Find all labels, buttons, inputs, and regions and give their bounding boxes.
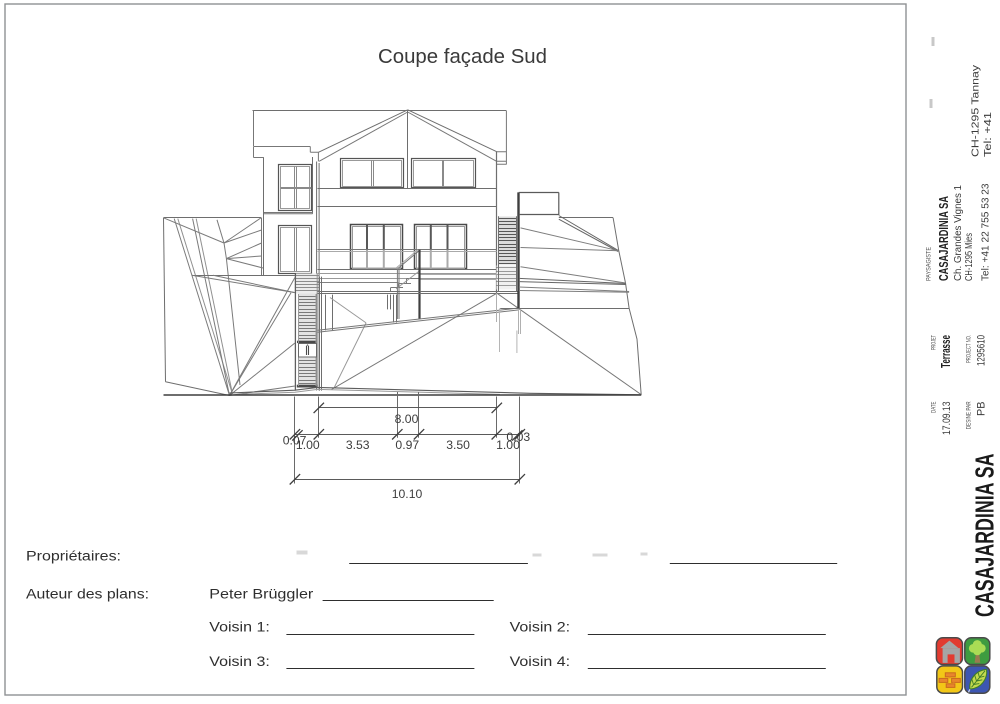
svg-text:CASAJARDINIA SA: CASAJARDINIA SA xyxy=(937,196,951,281)
svg-text:3.50: 3.50 xyxy=(446,438,470,452)
svg-text:Voisin 2:: Voisin 2: xyxy=(510,620,570,635)
svg-text:PB: PB xyxy=(976,402,988,417)
svg-text:0.03: 0.03 xyxy=(506,430,530,444)
svg-text:1295610: 1295610 xyxy=(976,335,988,366)
svg-text:Propriétaires:: Propriétaires: xyxy=(26,549,121,564)
svg-text:3.53: 3.53 xyxy=(346,438,370,452)
svg-text:Tel: +41: Tel: +41 xyxy=(983,111,994,157)
svg-text:1.00: 1.00 xyxy=(296,438,320,452)
svg-text:Voisin 3:: Voisin 3: xyxy=(209,654,269,669)
svg-text:Ch. Grandes Vignes 1: Ch. Grandes Vignes 1 xyxy=(953,185,964,281)
svg-text:CH-1295 Tannay: CH-1295 Tannay xyxy=(971,65,982,157)
svg-text:Voisin 1:: Voisin 1: xyxy=(209,620,269,635)
svg-text:CH-1295 Mies: CH-1295 Mies xyxy=(964,233,975,281)
svg-text:PAYSAGISTE: PAYSAGISTE xyxy=(926,246,933,281)
svg-text:Tel: +41 22 755 53 23: Tel: +41 22 755 53 23 xyxy=(981,183,992,281)
svg-text:PROJET: PROJET xyxy=(931,335,938,350)
svg-text:Terrasse: Terrasse xyxy=(939,335,953,368)
svg-text:0.97: 0.97 xyxy=(395,438,419,452)
svg-text:DATE: DATE xyxy=(931,401,938,413)
svg-text:17.09.13: 17.09.13 xyxy=(941,402,953,436)
svg-text:CASAJARDINIA SA: CASAJARDINIA SA xyxy=(970,453,1000,617)
svg-text:8.00: 8.00 xyxy=(395,412,419,426)
svg-text:10.10: 10.10 xyxy=(392,487,423,501)
svg-text:Voisin 4:: Voisin 4: xyxy=(510,654,570,669)
svg-text:Coupe façade Sud: Coupe façade Sud xyxy=(378,45,547,68)
svg-text:DESINE PAR: DESINE PAR xyxy=(965,401,972,429)
svg-text:Auteur des plans:: Auteur des plans: xyxy=(26,587,149,602)
svg-text:PROJECT NO.: PROJECT NO. xyxy=(965,335,972,363)
svg-text:Peter Brüggler: Peter Brüggler xyxy=(209,587,314,602)
